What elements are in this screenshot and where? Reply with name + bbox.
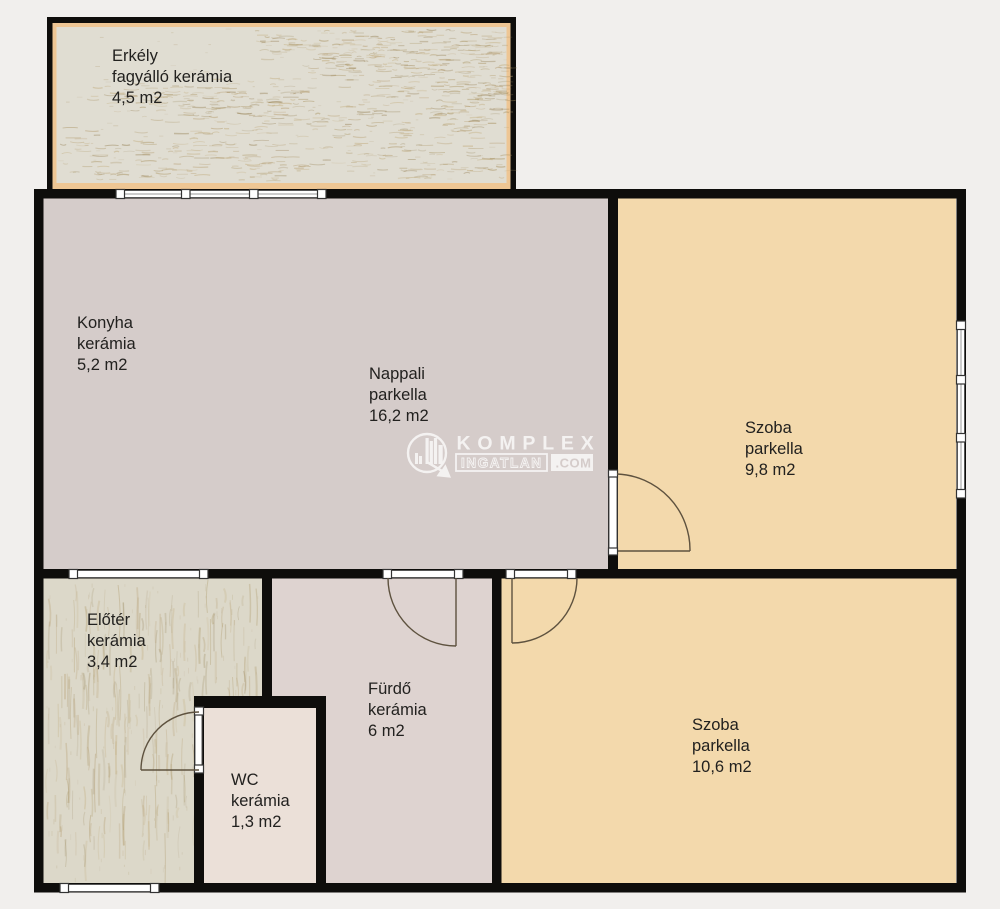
- svg-text:parkella: parkella: [369, 386, 428, 404]
- svg-text:1,3 m2: 1,3 m2: [231, 813, 281, 831]
- svg-text:5,2 m2: 5,2 m2: [77, 356, 127, 374]
- svg-text:kerámia: kerámia: [368, 701, 428, 719]
- svg-text:3,4 m2: 3,4 m2: [87, 653, 137, 671]
- svg-text:Előtér: Előtér: [87, 611, 131, 629]
- svg-text:6 m2: 6 m2: [368, 722, 405, 740]
- svg-text:Szoba: Szoba: [745, 419, 793, 437]
- svg-text:kerámia: kerámia: [77, 335, 137, 353]
- svg-text:parkella: parkella: [745, 440, 804, 458]
- svg-text:Fürdő: Fürdő: [368, 680, 411, 698]
- svg-text:9,8 m2: 9,8 m2: [745, 461, 795, 479]
- svg-text:Szoba: Szoba: [692, 716, 740, 734]
- svg-text:.COM: .COM: [556, 456, 592, 471]
- svg-text:kerámia: kerámia: [87, 632, 147, 650]
- svg-text:kerámia: kerámia: [231, 792, 291, 810]
- svg-text:Erkély: Erkély: [112, 47, 159, 65]
- svg-text:fagyálló kerámia: fagyálló kerámia: [112, 68, 233, 86]
- svg-text:INGATLAN: INGATLAN: [461, 456, 543, 471]
- svg-text:KOMPLEX: KOMPLEX: [457, 433, 601, 455]
- svg-text:Konyha: Konyha: [77, 314, 134, 332]
- svg-text:4,5 m2: 4,5 m2: [112, 89, 162, 107]
- svg-text:Nappali: Nappali: [369, 365, 425, 383]
- svg-text:16,2 m2: 16,2 m2: [369, 407, 429, 425]
- svg-text:10,6 m2: 10,6 m2: [692, 758, 752, 776]
- svg-text:parkella: parkella: [692, 737, 751, 755]
- svg-text:WC: WC: [231, 771, 259, 789]
